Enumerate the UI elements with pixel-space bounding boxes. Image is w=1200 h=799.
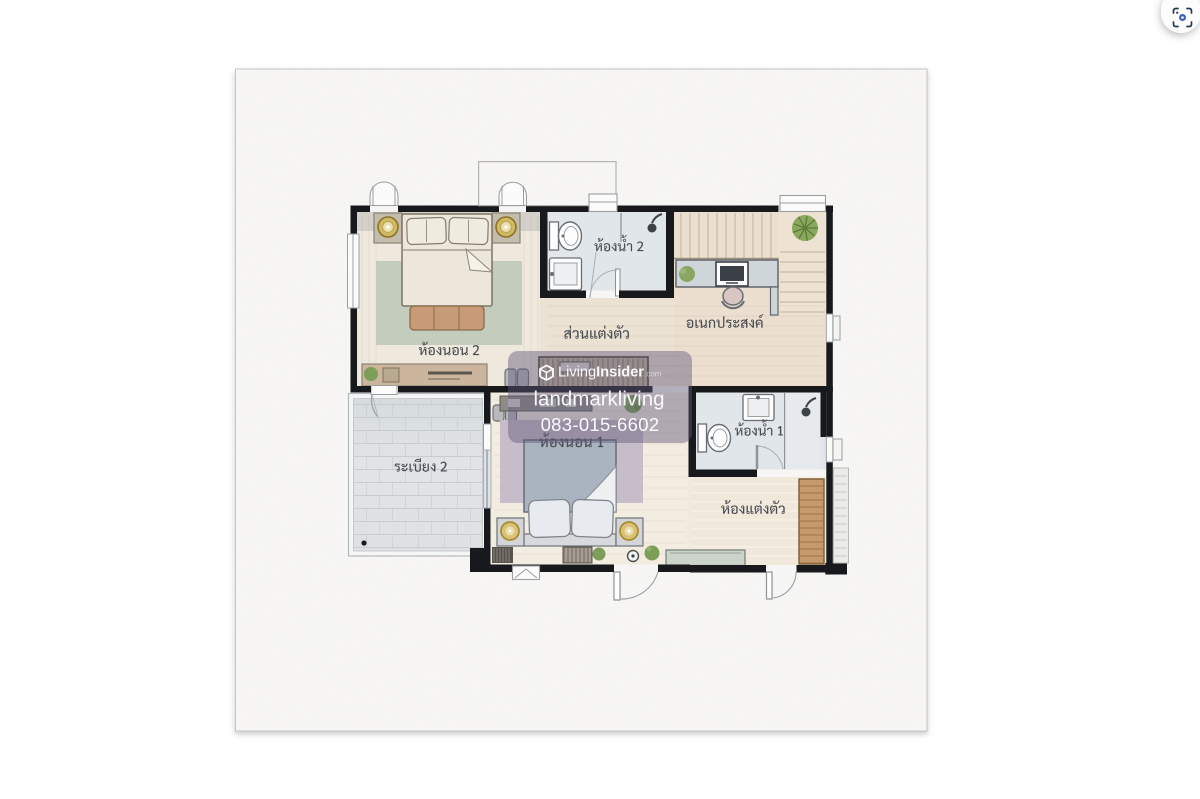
svg-text:landmarkliving: landmarkliving bbox=[533, 388, 664, 411]
svg-text:083-015-6602: 083-015-6602 bbox=[541, 414, 660, 435]
